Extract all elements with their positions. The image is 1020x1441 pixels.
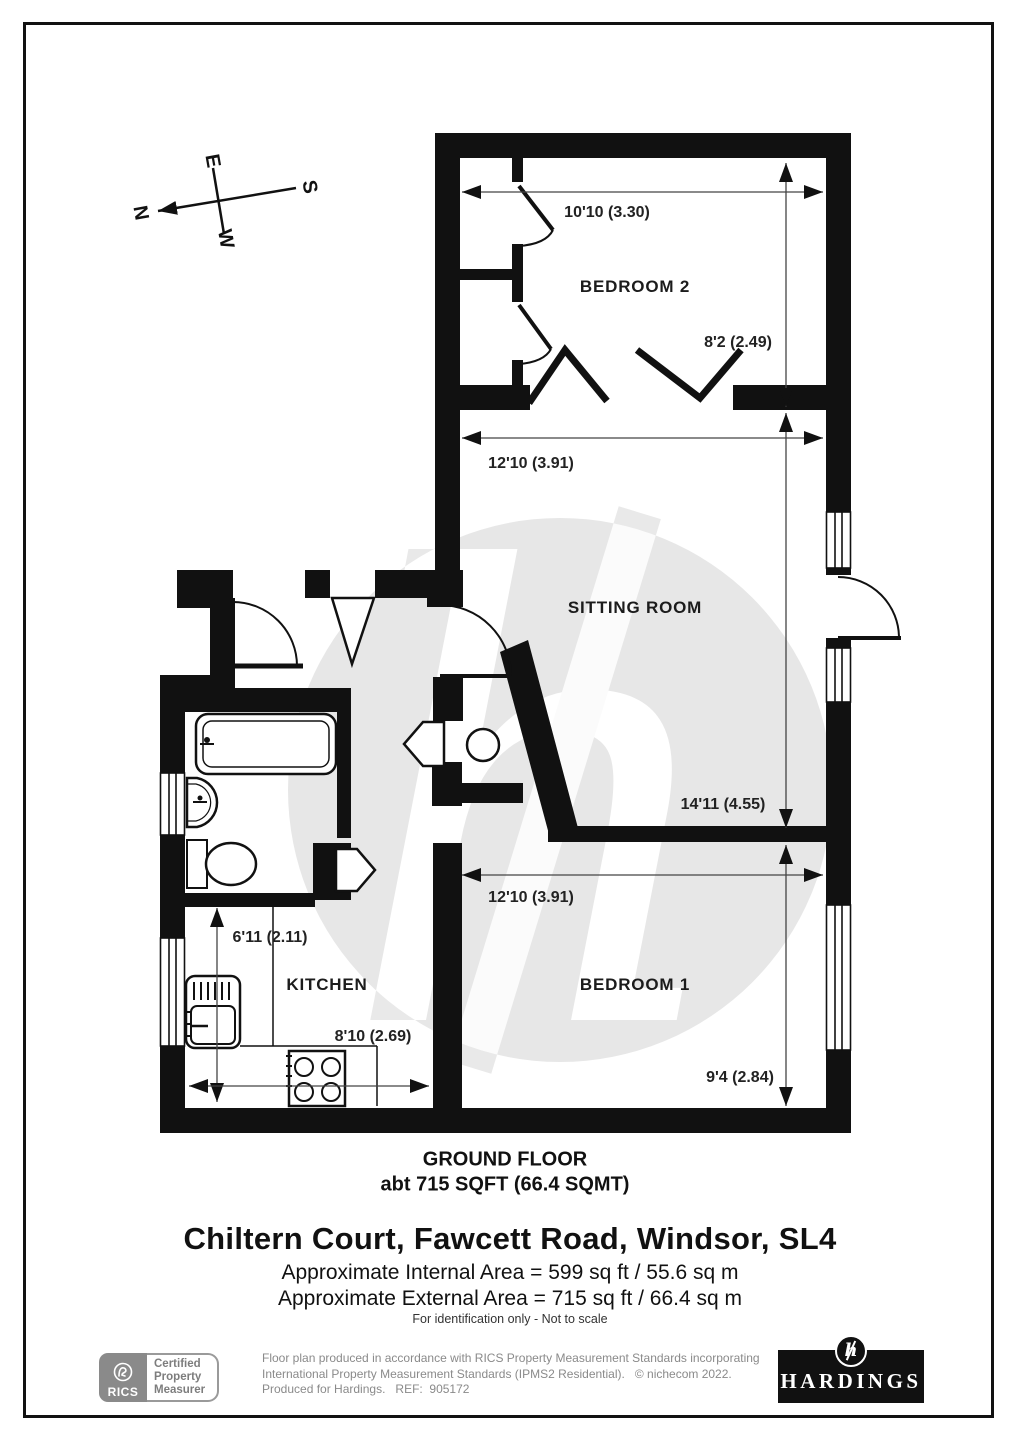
hob-icon [286, 1051, 345, 1106]
rics-crest-icon [112, 1361, 134, 1385]
window-bathroom [161, 773, 185, 835]
rics-cert-line: Property [154, 1371, 217, 1384]
opening-zigzag-2 [637, 350, 741, 398]
internal-area: Approximate Internal Area = 599 sq ft / … [281, 1261, 738, 1285]
hardings-name-label: HARDINGS [778, 1369, 924, 1394]
rics-cert-line: Certified [154, 1358, 217, 1371]
floor-title: GROUND FLOOR [423, 1149, 587, 1172]
dim-label-bedroom1-width: 12'10 (3.91) [488, 889, 574, 907]
window-kitchen [161, 938, 185, 1046]
wc-basin-icon [467, 729, 499, 761]
toilet-icon [187, 840, 256, 888]
dim-label-bedroom2-depth: 8'2 (2.49) [704, 334, 772, 352]
disclaimer-line: International Property Measurement Stand… [262, 1367, 772, 1383]
dim-label-sitting-width: 12'10 (3.91) [488, 455, 574, 473]
room-label-bedroom2: BEDROOM 2 [580, 277, 690, 297]
kitchen-sink-icon [186, 976, 240, 1048]
property-address: Chiltern Court, Fawcett Road, Windsor, S… [183, 1221, 836, 1257]
dim-label-kitchen-width: 8'10 (2.69) [335, 1028, 412, 1046]
window-sitting-2 [827, 648, 851, 702]
floor-plan-page: h h [0, 0, 1020, 1441]
room-label-kitchen: KITCHEN [286, 975, 367, 995]
sitting-external-door [838, 577, 901, 638]
rics-cert-line: Measurer [154, 1384, 217, 1397]
rics-certification: Certified Property Measurer [147, 1353, 219, 1402]
closet-door-2 [519, 305, 551, 364]
entrance-door [233, 602, 303, 666]
compass-west-label: W [212, 228, 238, 251]
dim-label-kitchen-depth: 6'11 (2.11) [233, 929, 308, 947]
closet-door-1 [519, 186, 553, 246]
hardings-monogram-icon: h [835, 1335, 867, 1367]
external-area: Approximate External Area = 715 sq ft / … [278, 1287, 742, 1311]
floor-area: abt 715 SQFT (66.4 SQMT) [381, 1174, 630, 1197]
basin-icon [187, 778, 217, 827]
identification-note: For identification only - Not to scale [412, 1312, 607, 1326]
dim-label-sitting-depth: 14'11 (4.55) [681, 796, 766, 814]
room-label-sitting-room: SITTING ROOM [568, 598, 702, 618]
rics-brand-label: RICS [108, 1385, 139, 1399]
bathtub-icon [196, 714, 336, 774]
dim-label-bedroom2-width: 10'10 (3.30) [564, 204, 650, 222]
rics-logo: RICS [99, 1353, 147, 1402]
disclaimer-line: Produced for Hardings. REF: 905172 [262, 1382, 772, 1398]
footer-disclaimer: Floor plan produced in accordance with R… [262, 1351, 772, 1398]
dim-label-bedroom1-depth: 9'4 (2.84) [706, 1069, 774, 1087]
hardings-logo: h HARDINGS [778, 1350, 924, 1403]
compass-icon [158, 168, 296, 234]
disclaimer-line: Floor plan produced in accordance with R… [262, 1351, 772, 1367]
window-bedroom1 [827, 905, 851, 1050]
room-label-bedroom1: BEDROOM 1 [580, 975, 690, 995]
window-sitting-1 [827, 512, 851, 568]
rics-badge: RICS Certified Property Measurer [99, 1353, 219, 1402]
